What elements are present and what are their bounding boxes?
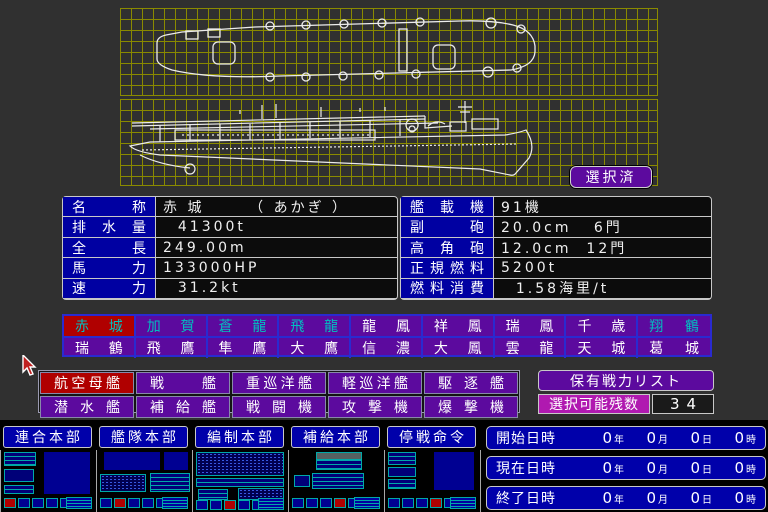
spec-row: 馬力 133000HP xyxy=(63,258,397,278)
ship-item[interactable]: 天城 xyxy=(566,338,638,358)
spec-label: 名称 xyxy=(63,197,156,216)
category-button[interactable]: 戦闘機 xyxy=(232,396,326,418)
spec-label: 副砲 xyxy=(401,217,494,236)
spec-table-left: 名称 赤 城 （ あかぎ ） 排水量 41300t 全長 249.00m 馬力 … xyxy=(62,196,398,300)
thumb-block xyxy=(388,467,416,477)
thumb-stripe-button xyxy=(258,498,284,510)
thumb-stripe-button xyxy=(450,497,476,509)
clock-month: 0月 xyxy=(624,459,668,477)
bottom-menu-bar: 連合本部 艦隊本部 xyxy=(0,420,768,512)
ship-item[interactable]: 大鷹 xyxy=(279,338,351,358)
thumb-stripe-button xyxy=(354,497,380,509)
carrier-top-view-drawing xyxy=(120,8,657,95)
menu-button-kantai-honbu[interactable]: 艦隊本部 xyxy=(99,426,188,448)
spec-value: 12.0cm 12門 xyxy=(494,238,711,257)
selected-badge: 選択済 xyxy=(570,166,652,188)
spec-value: 31.2kt xyxy=(156,279,397,298)
thumb-button xyxy=(128,498,140,508)
clock-hour: 0時 xyxy=(712,489,756,507)
category-button[interactable]: 爆撃機 xyxy=(424,396,518,418)
clock-hour: 0時 xyxy=(712,429,756,447)
thumb-button xyxy=(32,498,44,508)
thumb-button xyxy=(100,498,112,508)
spec-label: 燃料消費 xyxy=(401,279,494,298)
thumb-button xyxy=(142,498,154,508)
category-row1: 航空母艦戦艦重巡洋艦軽巡洋艦駆逐艦 xyxy=(40,372,518,394)
mouse-cursor-icon xyxy=(22,355,37,377)
spec-value: 20.0cm 6門 xyxy=(494,217,711,236)
thumb-block xyxy=(294,475,310,487)
thumb-block xyxy=(196,452,284,476)
thumb-button xyxy=(306,498,318,508)
thumb-block xyxy=(198,489,228,500)
category-button[interactable]: 戦艦 xyxy=(136,372,230,394)
spec-row: 名称 赤 城 （ あかぎ ） xyxy=(63,197,397,217)
thumb-block xyxy=(316,460,362,470)
clock-month: 0月 xyxy=(624,489,668,507)
thumb-button xyxy=(114,498,126,508)
category-button[interactable]: 潜水艦 xyxy=(40,396,134,418)
spec-value: 249.00m xyxy=(156,238,397,257)
clock-year: 0年 xyxy=(580,429,624,447)
clock-label: 開始日時 xyxy=(487,428,580,448)
menu-thumbnail[interactable] xyxy=(194,452,286,510)
category-button[interactable]: 補給艦 xyxy=(136,396,230,418)
menu-button-rengo-honbu[interactable]: 連合本部 xyxy=(3,426,92,448)
spec-value: 5200t xyxy=(494,258,711,277)
menu-thumbnail[interactable] xyxy=(290,452,382,510)
spec-label: 全長 xyxy=(63,238,156,257)
clock-day: 0日 xyxy=(668,489,712,507)
ship-list-row1: 赤城加賀蒼龍飛龍龍鳳祥鳳瑞鳳千歳翔鶴 xyxy=(64,316,710,338)
category-button[interactable]: 重巡洋艦 xyxy=(232,372,326,394)
ship-item[interactable]: 加賀 xyxy=(136,316,208,336)
ship-item[interactable]: 葛城 xyxy=(638,338,710,358)
ship-item[interactable]: 赤城 xyxy=(64,316,136,336)
spec-value: 133000HP xyxy=(156,258,397,277)
spec-label: 正規燃料 xyxy=(401,258,494,277)
thumb-button xyxy=(292,498,304,508)
thumb-button xyxy=(196,500,208,510)
ship-item[interactable]: 翔鶴 xyxy=(638,316,710,336)
selectable-remaining-value: 34 xyxy=(652,394,714,414)
ship-item[interactable]: 雲龍 xyxy=(495,338,567,358)
spec-row: 速力 31.2kt xyxy=(63,279,397,299)
thumb-block xyxy=(312,473,364,489)
thumb-button xyxy=(388,498,400,508)
ship-item[interactable]: 飛鷹 xyxy=(136,338,208,358)
menu-section-rengo-honbu: 連合本部 xyxy=(0,420,96,512)
thumb-button xyxy=(224,500,236,510)
thumb-block xyxy=(100,474,146,492)
clock-day: 0日 xyxy=(668,459,712,477)
spec-value: 91機 xyxy=(494,197,711,216)
spec-value: 1.58海里/t xyxy=(494,279,711,298)
clock-month: 0月 xyxy=(624,429,668,447)
clock-panel: 開始日時 0年 0月 0日 0時 現在日時 0年 0月 0日 0時 終了日時 0… xyxy=(486,426,766,510)
thumb-button xyxy=(416,498,428,508)
thumb-button xyxy=(334,498,346,508)
category-grid: 航空母艦戦艦重巡洋艦軽巡洋艦駆逐艦 潜水艦補給艦戦闘機攻撃機爆撃機 xyxy=(38,370,520,413)
menu-button-hokyu-honbu[interactable]: 補給本部 xyxy=(291,426,380,448)
thumb-button xyxy=(46,498,58,508)
ship-list-row2: 瑞鶴飛鷹隼鷹大鷹信濃大鳳雲龍天城葛城 xyxy=(64,338,710,358)
thumb-button xyxy=(402,498,414,508)
clock-row: 現在日時 0年 0月 0日 0時 xyxy=(486,456,766,480)
spec-row: 燃料消費 1.58海里/t xyxy=(401,279,711,299)
ship-item[interactable]: 祥鳳 xyxy=(423,316,495,336)
category-button[interactable]: 駆逐艦 xyxy=(424,372,518,394)
category-button[interactable]: 航空母艦 xyxy=(40,372,134,394)
ship-item[interactable]: 大鳳 xyxy=(423,338,495,358)
menu-button-hensei-honbu[interactable]: 編制本部 xyxy=(195,426,284,448)
spec-value: 41300t xyxy=(156,217,397,236)
thumb-block xyxy=(104,452,160,470)
thumb-button xyxy=(430,498,442,508)
ship-item[interactable]: 瑞鳳 xyxy=(495,316,567,336)
thumb-stripe-button xyxy=(66,497,92,509)
spec-row: 排水量 41300t xyxy=(63,217,397,237)
thumb-block xyxy=(388,479,416,489)
clock-label: 終了日時 xyxy=(487,488,580,508)
thumb-block xyxy=(316,452,362,460)
thumb-button xyxy=(18,498,30,508)
menu-section-kantai-honbu: 艦隊本部 xyxy=(96,420,192,512)
spec-label: 排水量 xyxy=(63,217,156,236)
thumb-block xyxy=(164,452,188,470)
spec-label: 艦載機 xyxy=(401,197,494,216)
menu-button-teisen-meirei[interactable]: 停戦命令 xyxy=(387,426,476,448)
ship-item[interactable]: 隼鷹 xyxy=(208,338,280,358)
thumb-stripe-button xyxy=(162,497,188,509)
spec-row: 全長 249.00m xyxy=(63,238,397,258)
category-button[interactable]: 攻撃機 xyxy=(328,396,422,418)
clock-row: 開始日時 0年 0月 0日 0時 xyxy=(486,426,766,450)
thumb-block xyxy=(388,452,416,465)
thumb-block xyxy=(44,452,90,494)
thumb-block xyxy=(150,473,190,492)
spec-row: 副砲 20.0cm 6門 xyxy=(401,217,711,237)
clock-hour: 0時 xyxy=(712,459,756,477)
spec-table-right: 艦載機 91機 副砲 20.0cm 6門 高角砲 12.0cm 12門 正規燃料… xyxy=(400,196,712,300)
spec-row: 艦載機 91機 xyxy=(401,197,711,217)
blueprint-top-view xyxy=(120,8,658,96)
thumb-block xyxy=(434,452,474,490)
thumb-button xyxy=(4,498,16,508)
ship-item[interactable]: 信濃 xyxy=(351,338,423,358)
ship-item[interactable]: 瑞鶴 xyxy=(64,338,136,358)
menu-thumbnail[interactable] xyxy=(2,452,94,510)
menu-thumbnail[interactable] xyxy=(98,452,190,510)
thumb-button xyxy=(320,498,332,508)
thumb-button xyxy=(238,500,250,510)
clock-day: 0日 xyxy=(668,429,712,447)
thumb-block xyxy=(4,452,36,466)
ship-item[interactable]: 龍鳳 xyxy=(351,316,423,336)
menu-section-hokyu-honbu: 補給本部 xyxy=(288,420,384,512)
menu-section-hensei-honbu: 編制本部 xyxy=(192,420,288,512)
spec-value: 赤 城 （ あかぎ ） xyxy=(156,197,397,216)
menu-thumbnail[interactable] xyxy=(386,452,478,510)
menu-section-teisen-meirei: 停戦命令 xyxy=(384,420,480,512)
thumb-block xyxy=(4,485,34,494)
spec-label: 高角砲 xyxy=(401,238,494,257)
thumb-block xyxy=(196,478,284,487)
thumb-block xyxy=(4,469,34,482)
clock-label: 現在日時 xyxy=(487,458,580,478)
ship-list: 赤城加賀蒼龍飛龍龍鳳祥鳳瑞鳳千歳翔鶴 瑞鶴飛鷹隼鷹大鷹信濃大鳳雲龍天城葛城 xyxy=(62,314,712,357)
spec-row: 高角砲 12.0cm 12門 xyxy=(401,238,711,258)
owned-force-list-button[interactable]: 保有戦力リスト xyxy=(538,370,714,391)
selectable-remaining-label: 選択可能残数 xyxy=(538,394,650,414)
ship-item[interactable]: 飛龍 xyxy=(279,316,351,336)
divider xyxy=(480,450,481,512)
category-button[interactable]: 軽巡洋艦 xyxy=(328,372,422,394)
clock-row: 終了日時 0年 0月 0日 0時 xyxy=(486,486,766,510)
spec-row: 正規燃料 5200t xyxy=(401,258,711,278)
ship-item[interactable]: 蒼龍 xyxy=(208,316,280,336)
category-row2: 潜水艦補給艦戦闘機攻撃機爆撃機 xyxy=(40,396,518,418)
ship-item[interactable]: 千歳 xyxy=(566,316,638,336)
spec-label: 馬力 xyxy=(63,258,156,277)
clock-year: 0年 xyxy=(580,459,624,477)
thumb-button xyxy=(210,500,222,510)
game-screen: 選択済 名称 赤 城 （ あかぎ ） 排水量 41300t 全長 249.00m… xyxy=(0,0,768,512)
spec-label: 速力 xyxy=(63,279,156,298)
clock-year: 0年 xyxy=(580,489,624,507)
